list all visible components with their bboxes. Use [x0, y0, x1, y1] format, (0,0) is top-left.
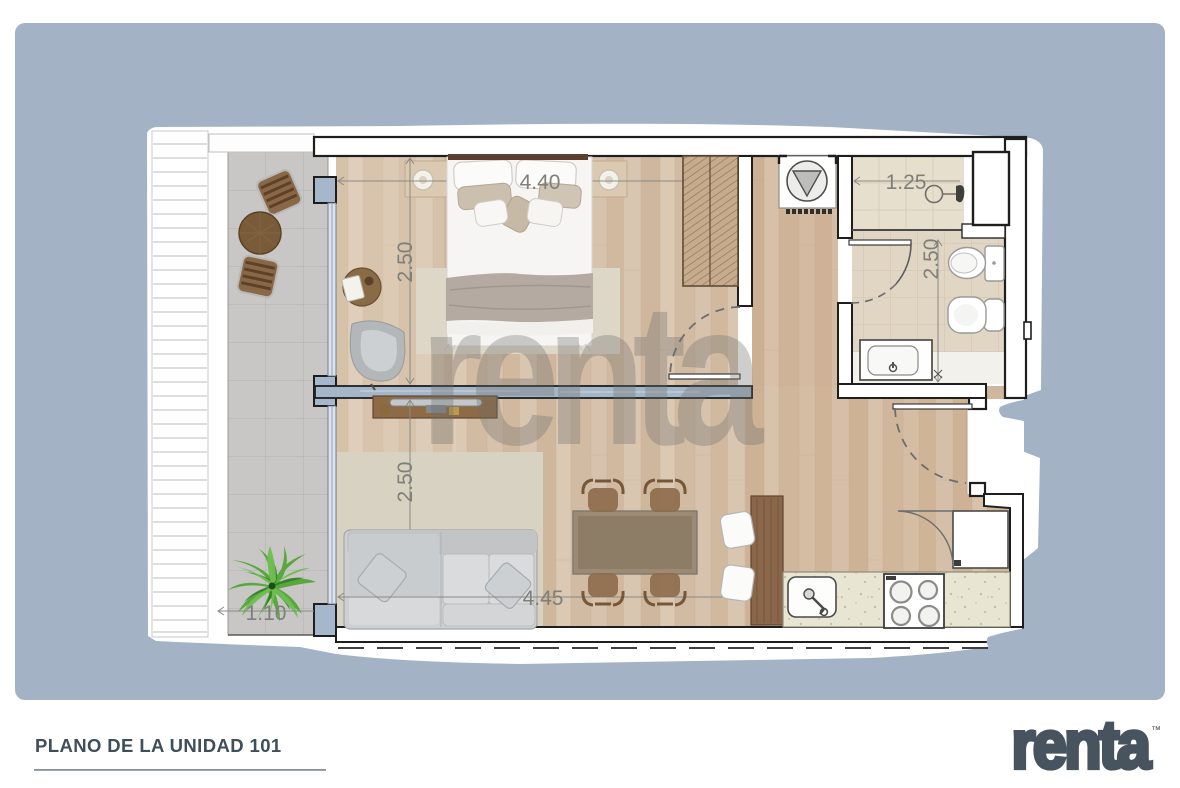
svg-text:1.10: 1.10 [246, 602, 287, 625]
svg-text:4.40: 4.40 [520, 171, 561, 194]
svg-text:renta: renta [1012, 707, 1153, 783]
svg-text:renta: renta [420, 261, 765, 487]
svg-text:4.45: 4.45 [523, 587, 564, 610]
svg-text:2.50: 2.50 [394, 462, 417, 503]
svg-text:™: ™ [1151, 725, 1161, 736]
svg-text:2.50: 2.50 [394, 242, 417, 283]
svg-text:1.25: 1.25 [886, 171, 927, 194]
svg-text:PLANO DE LA UNIDAD 101: PLANO DE LA UNIDAD 101 [35, 735, 282, 756]
svg-text:2.50: 2.50 [920, 239, 943, 280]
